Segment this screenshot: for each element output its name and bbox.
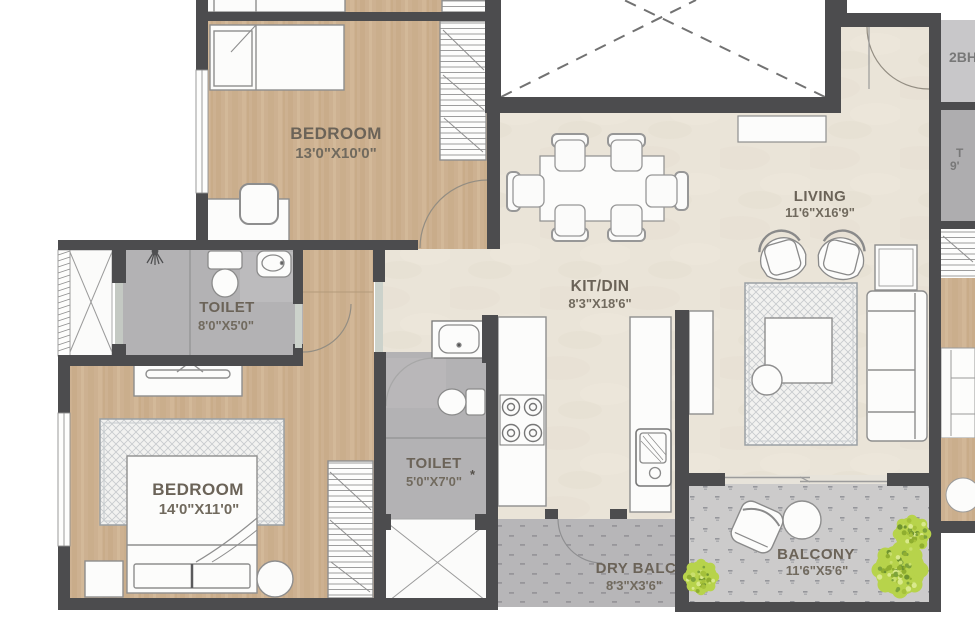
svg-text:2BH: 2BH — [949, 49, 975, 65]
svg-text:8'3"X3'6": 8'3"X3'6" — [606, 578, 662, 593]
svg-text:8'0"X5'0": 8'0"X5'0" — [198, 318, 254, 333]
svg-text:T: T — [956, 146, 964, 160]
svg-text:8'3"X18'6": 8'3"X18'6" — [568, 296, 631, 311]
svg-text:KIT/DIN: KIT/DIN — [571, 278, 630, 295]
svg-text:14'0"X11'0": 14'0"X11'0" — [159, 501, 240, 518]
svg-text:DRY BALC: DRY BALC — [596, 560, 677, 577]
svg-text:11'6"X16'9": 11'6"X16'9" — [785, 205, 855, 220]
svg-text:BEDROOM: BEDROOM — [152, 480, 244, 499]
svg-text:11'6"X5'6": 11'6"X5'6" — [786, 563, 849, 578]
svg-text:TOILET: TOILET — [406, 455, 461, 472]
svg-text:BALCONY: BALCONY — [777, 546, 855, 563]
svg-text:LIVING: LIVING — [794, 188, 846, 205]
svg-text:9': 9' — [950, 159, 960, 173]
svg-text:TOILET: TOILET — [199, 299, 254, 316]
svg-text:5'0"X7'0": 5'0"X7'0" — [406, 474, 462, 489]
svg-text:BEDROOM: BEDROOM — [290, 124, 382, 143]
svg-text:13'0"X10'0": 13'0"X10'0" — [295, 145, 376, 162]
